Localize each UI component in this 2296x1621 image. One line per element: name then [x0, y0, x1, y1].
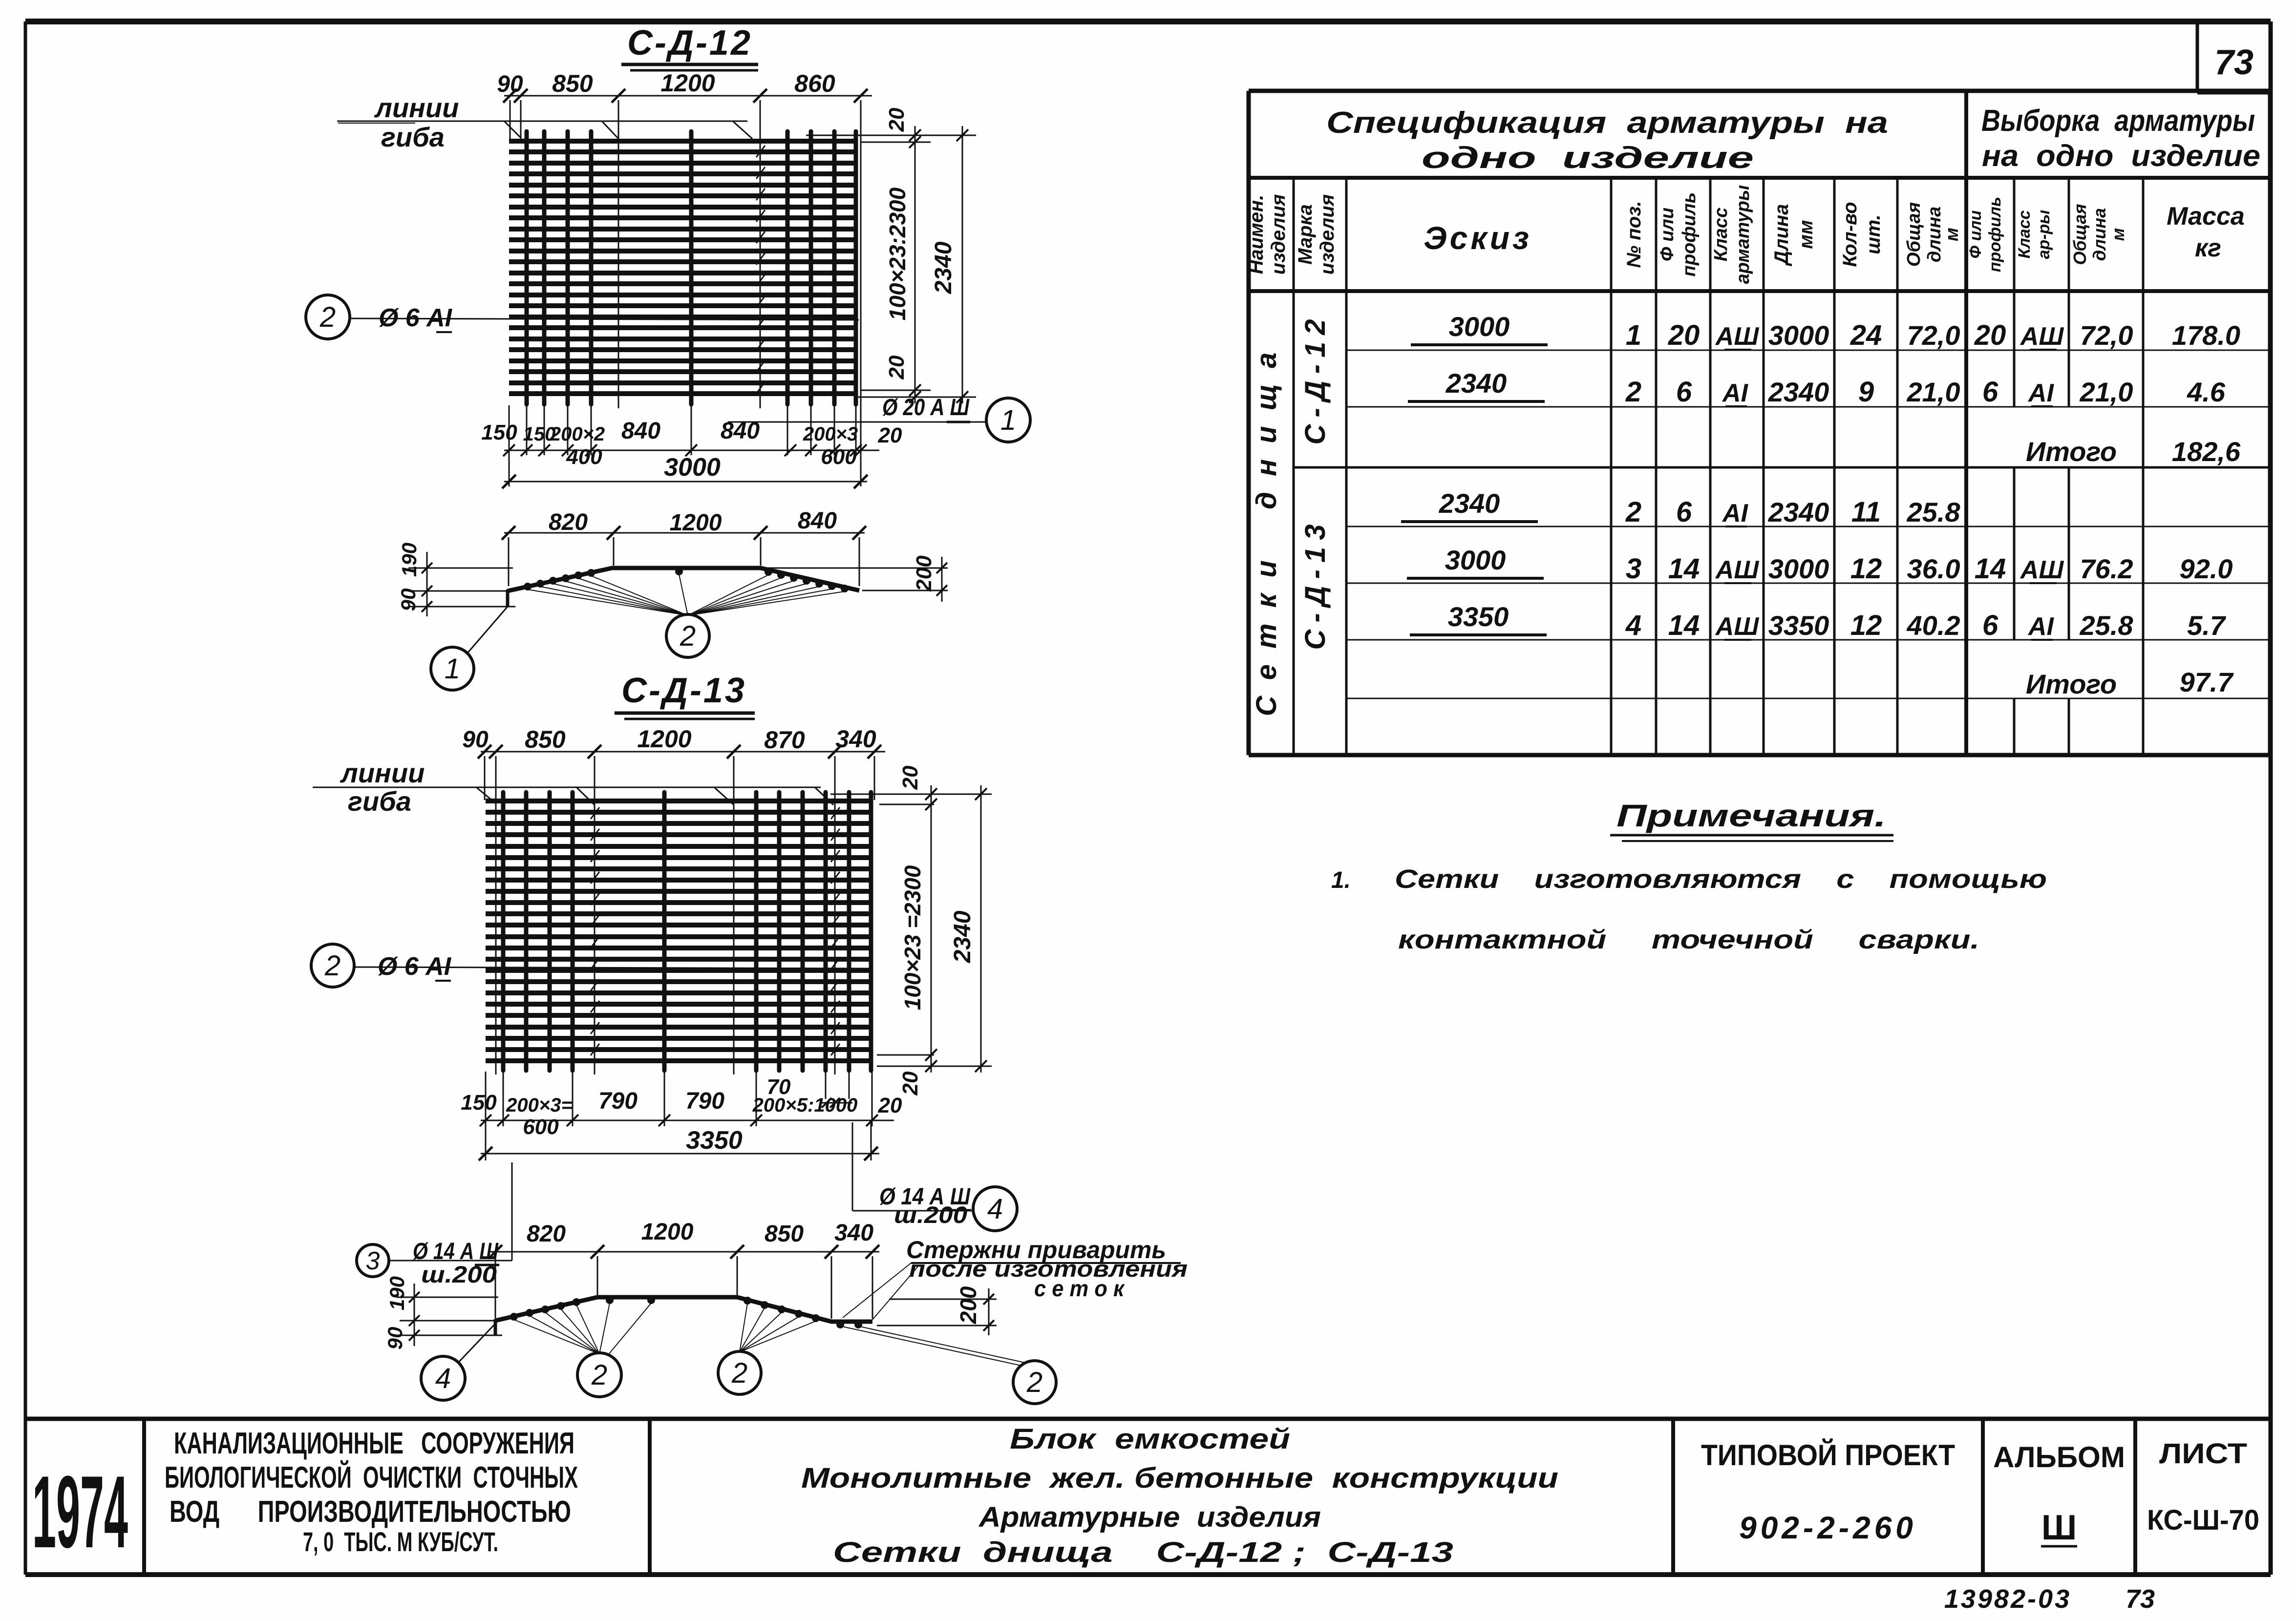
svg-text:820: 820	[527, 1221, 566, 1247]
svg-text:7, 0 ТЫС. М КУБ/СУТ.: 7, 0 ТЫС. М КУБ/СУТ.	[303, 1526, 498, 1557]
svg-text:4: 4	[435, 1363, 451, 1394]
svg-text:12: 12	[1850, 610, 1882, 641]
svg-text:1.: 1.	[1331, 867, 1351, 893]
svg-text:2: 2	[324, 950, 340, 982]
svg-text:АІ: АІ	[2027, 612, 2055, 641]
svg-text:850: 850	[552, 70, 593, 97]
svg-text:1: 1	[445, 653, 460, 685]
svg-text:14: 14	[1668, 553, 1700, 585]
svg-text:4: 4	[987, 1193, 1003, 1225]
svg-text:200×3=: 200×3=	[506, 1095, 573, 1116]
svg-text:Сетки изготовляются с: Сетки изготовляются с помощью	[1395, 864, 2047, 894]
svg-text:Марка: Марка	[1295, 204, 1316, 265]
svg-text:790: 790	[685, 1088, 724, 1114]
svg-text:1200: 1200	[670, 510, 722, 536]
svg-text:850: 850	[765, 1221, 804, 1247]
svg-text:150: 150	[481, 421, 517, 444]
svg-text:ар-ры: ар-ры	[2035, 210, 2053, 259]
svg-text:с е т о к: с е т о к	[1034, 1276, 1126, 1301]
svg-text:200: 200	[956, 1286, 981, 1324]
svg-text:24: 24	[1850, 319, 1882, 351]
svg-text:шт.: шт.	[1863, 214, 1884, 254]
svg-text:м: м	[2108, 228, 2128, 241]
svg-text:90: 90	[383, 1327, 406, 1350]
svg-text:КС-Ш-70: КС-Ш-70	[2147, 1504, 2259, 1536]
svg-text:АІ: АІ	[1722, 499, 1749, 527]
svg-text:3: 3	[366, 1247, 380, 1275]
svg-text:Эскиз: Эскиз	[1424, 220, 1532, 256]
svg-text:6: 6	[1982, 376, 1998, 408]
svg-text:Монолитные жел. бетонные кон: Монолитные жел. бетонные конструкции	[801, 1462, 1558, 1494]
svg-text:1974: 1974	[32, 1454, 128, 1569]
svg-text:6: 6	[1676, 376, 1692, 408]
svg-text:Итого: Итого	[2026, 669, 2117, 699]
svg-text:25.8: 25.8	[2080, 610, 2134, 641]
svg-text:Масса: Масса	[2167, 202, 2245, 231]
svg-text:АІ: АІ	[1722, 379, 1749, 407]
svg-text:АШ: АШ	[1715, 322, 1760, 351]
svg-text:9: 9	[1858, 376, 1874, 408]
svg-text:840: 840	[621, 418, 660, 444]
svg-text:гиба: гиба	[381, 122, 445, 152]
svg-text:2340: 2340	[1768, 377, 1829, 407]
svg-text:Выборка арматуры: Выборка арматуры	[1981, 104, 2255, 138]
svg-text:190: 190	[385, 1276, 408, 1310]
svg-text:Класс: Класс	[1711, 208, 1731, 261]
svg-text:АШ: АШ	[1715, 612, 1760, 641]
svg-text:линии: линии	[374, 92, 459, 123]
svg-text:2: 2	[1026, 1367, 1042, 1398]
svg-text:изделия: изделия	[1268, 194, 1289, 275]
svg-text:11: 11	[1851, 496, 1881, 528]
svg-text:150: 150	[461, 1091, 497, 1115]
svg-text:860: 860	[794, 70, 835, 97]
svg-text:м: м	[1942, 228, 1962, 241]
svg-text:2340: 2340	[950, 910, 976, 963]
svg-text:С-Д-12: С-Д-12	[627, 23, 752, 63]
svg-text:изделия: изделия	[1317, 194, 1338, 275]
svg-text:97.7: 97.7	[2180, 667, 2234, 697]
svg-text:90: 90	[397, 589, 420, 611]
svg-text:БИОЛОГИЧЕСКОЙ ОЧИСТКИ СТОЧНЫ: БИОЛОГИЧЕСКОЙ ОЧИСТКИ СТОЧНЫХ	[165, 1460, 578, 1495]
svg-text:Класс: Класс	[2015, 211, 2034, 259]
svg-text:3350: 3350	[686, 1126, 743, 1155]
svg-text:3000: 3000	[1445, 545, 1506, 575]
svg-text:3000: 3000	[1768, 553, 1829, 584]
svg-text:100×23:2300: 100×23:2300	[885, 187, 910, 320]
svg-text:13982-03: 13982-03	[1944, 1584, 2071, 1614]
svg-text:Арматурные изделия: Арматурные изделия	[978, 1501, 1321, 1533]
svg-text:72,0: 72,0	[1907, 320, 1960, 351]
svg-text:20: 20	[1668, 319, 1700, 351]
svg-text:2: 2	[731, 1357, 747, 1389]
svg-text:25.8: 25.8	[1907, 497, 1961, 527]
svg-text:340: 340	[835, 725, 876, 753]
svg-text:902-2-260: 902-2-260	[1739, 1510, 1917, 1545]
svg-text:790: 790	[598, 1088, 638, 1114]
svg-text:одно изделие: одно изделие	[1422, 141, 1754, 175]
svg-text:12: 12	[1850, 553, 1882, 585]
svg-text:2: 2	[1625, 496, 1641, 528]
svg-text:кг: кг	[2195, 234, 2221, 262]
svg-text:3350: 3350	[1768, 610, 1829, 641]
svg-text:Длина: Длина	[1771, 204, 1792, 267]
svg-text:600: 600	[523, 1115, 559, 1139]
svg-text:4.6: 4.6	[2187, 377, 2226, 407]
svg-text:ш.200: ш.200	[894, 1202, 967, 1228]
svg-text:гиба: гиба	[348, 786, 411, 817]
svg-text:АШ: АШ	[2020, 556, 2064, 584]
svg-text:КАНАЛИЗАЦИОННЫЕ СООРУЖЕНИЯ: КАНАЛИЗАЦИОННЫЕ СООРУЖЕНИЯ	[174, 1427, 574, 1460]
svg-text:400: 400	[566, 445, 602, 469]
svg-text:2340: 2340	[931, 241, 957, 294]
svg-text:3000: 3000	[1768, 320, 1829, 351]
svg-text:длина: длина	[2089, 208, 2109, 261]
svg-text:92.0: 92.0	[2180, 553, 2233, 584]
svg-text:профиль: профиль	[1679, 192, 1700, 277]
svg-text:1200: 1200	[637, 725, 691, 753]
svg-text:20: 20	[878, 423, 902, 447]
svg-text:Ф или: Ф или	[1657, 208, 1678, 261]
svg-text:Блок емкостей: Блок емкостей	[1010, 1423, 1290, 1455]
svg-text:Сетки днища С-Д-12 ; С-Д-: Сетки днища С-Д-12 ; С-Д-13	[833, 1537, 1453, 1568]
svg-text:870: 870	[764, 726, 805, 754]
svg-text:ВОД ПРОИЗВОДИТЕЛЬНОСТЬЮ: ВОД ПРОИЗВОДИТЕЛЬНОСТЬЮ	[170, 1495, 571, 1529]
svg-text:2340: 2340	[1439, 488, 1500, 519]
svg-text:Примечания.: Примечания.	[1616, 798, 1886, 833]
svg-text:6: 6	[1676, 496, 1692, 528]
svg-text:840: 840	[798, 508, 837, 534]
svg-text:90: 90	[462, 727, 489, 753]
svg-text:1200: 1200	[641, 1219, 694, 1245]
svg-text:21,0: 21,0	[2080, 377, 2133, 407]
svg-text:ТИПОВОЙ ПРОЕКТ: ТИПОВОЙ ПРОЕКТ	[1701, 1439, 1955, 1472]
svg-text:контактной точечной св: контактной точечной сварки.	[1398, 925, 1979, 954]
svg-text:1200: 1200	[660, 69, 715, 97]
svg-text:арматуры: арматуры	[1733, 185, 1753, 284]
svg-text:Ш: Ш	[2041, 1508, 2077, 1547]
svg-text:1: 1	[1626, 319, 1641, 351]
svg-text:ЛИСТ: ЛИСТ	[2159, 1438, 2247, 1470]
svg-text:АШ: АШ	[1715, 556, 1760, 584]
svg-text:820: 820	[549, 509, 588, 535]
svg-text:20: 20	[878, 1094, 902, 1117]
svg-text:14: 14	[1668, 610, 1700, 641]
svg-text:178.0: 178.0	[2172, 320, 2240, 351]
svg-text:Спецификация арматуры на: Спецификация арматуры на	[1326, 106, 1888, 140]
svg-text:4: 4	[1625, 610, 1641, 641]
svg-text:С-Д-13: С-Д-13	[621, 671, 746, 710]
svg-text:Общая: Общая	[2070, 204, 2090, 265]
svg-text:АШ: АШ	[2020, 322, 2064, 351]
svg-text:линии: линии	[340, 758, 425, 788]
svg-text:2340: 2340	[1768, 497, 1829, 527]
svg-text:100×23 =2300: 100×23 =2300	[900, 865, 925, 1010]
svg-text:20: 20	[898, 765, 922, 790]
svg-text:40.2: 40.2	[1907, 610, 1960, 641]
svg-text:70: 70	[767, 1075, 791, 1099]
svg-text:1: 1	[1000, 404, 1016, 436]
svg-text:90: 90	[497, 71, 523, 97]
svg-text:600: 600	[821, 445, 857, 469]
svg-text:2340: 2340	[1446, 368, 1507, 399]
svg-text:№ поз.: № поз.	[1623, 201, 1645, 268]
svg-text:200×3: 200×3	[803, 423, 858, 445]
svg-text:АЛЬБОМ: АЛЬБОМ	[1993, 1441, 2125, 1474]
svg-text:С-Д-12: С-Д-12	[1299, 313, 1331, 445]
svg-text:20: 20	[1974, 319, 2006, 351]
svg-text:3000: 3000	[664, 453, 721, 482]
svg-text:20: 20	[885, 107, 909, 132]
svg-text:профиль: профиль	[1986, 197, 2004, 273]
svg-text:2: 2	[319, 301, 336, 333]
svg-text:2: 2	[1625, 376, 1641, 408]
svg-text:340: 340	[834, 1220, 873, 1246]
svg-text:850: 850	[525, 726, 566, 753]
svg-text:14: 14	[1975, 553, 2006, 585]
svg-text:20: 20	[885, 355, 909, 379]
svg-text:3350: 3350	[1448, 601, 1509, 632]
svg-text:Ф или: Ф или	[1966, 210, 1985, 258]
svg-text:Кол-во: Кол-во	[1839, 202, 1861, 267]
svg-text:ш.200: ш.200	[421, 1262, 497, 1288]
svg-text:200×2: 200×2	[550, 423, 605, 445]
svg-text:36.0: 36.0	[1907, 553, 1960, 584]
svg-text:С е т к и д н и щ а: С е т к и д н и щ а	[1251, 349, 1282, 716]
svg-text:73: 73	[2214, 43, 2253, 82]
svg-text:2: 2	[680, 620, 696, 652]
svg-text:190: 190	[398, 543, 421, 577]
svg-text:72,0: 72,0	[2080, 320, 2133, 351]
svg-text:Ø 20 А Ш: Ø 20 А Ш	[882, 395, 970, 421]
svg-text:АІ: АІ	[2027, 379, 2055, 407]
svg-text:6: 6	[1982, 610, 1998, 641]
svg-text:3: 3	[1626, 553, 1641, 585]
svg-text:73: 73	[2126, 1584, 2155, 1614]
svg-text:2: 2	[591, 1359, 607, 1391]
svg-text:на одно изделие: на одно изделие	[1982, 139, 2260, 173]
svg-text:21,0: 21,0	[1907, 377, 1960, 407]
svg-text:Итого: Итого	[2026, 436, 2117, 467]
svg-text:20: 20	[898, 1071, 922, 1095]
svg-text:Наимен.: Наимен.	[1246, 195, 1267, 274]
svg-text:мм: мм	[1795, 220, 1817, 249]
svg-text:3000: 3000	[1449, 311, 1510, 342]
svg-text:С-Д-13: С-Д-13	[1299, 518, 1331, 650]
svg-text:200: 200	[912, 555, 936, 592]
svg-text:5.7: 5.7	[2187, 610, 2227, 641]
svg-text:Общая: Общая	[1904, 202, 1924, 267]
svg-text:182,6: 182,6	[2172, 436, 2241, 467]
svg-text:76.2: 76.2	[2080, 553, 2133, 584]
